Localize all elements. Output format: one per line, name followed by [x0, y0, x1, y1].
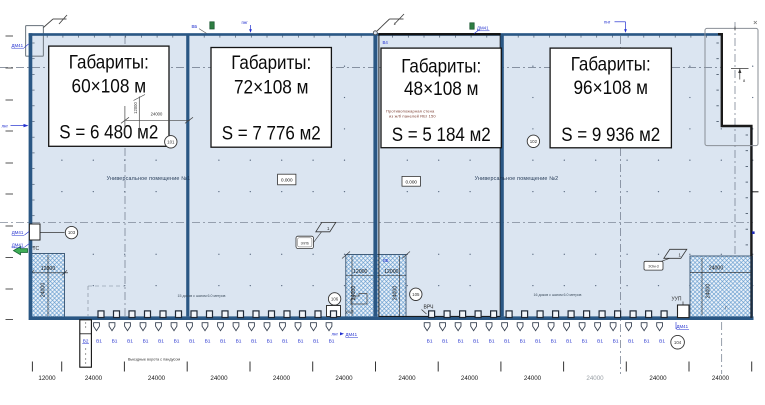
svg-text:пнг: пнг: [242, 20, 249, 25]
svg-text:В1: В1: [96, 339, 102, 345]
svg-text:В1: В1: [127, 339, 133, 345]
svg-text:24000: 24000: [273, 375, 291, 382]
svg-text:В1: В1: [220, 339, 226, 345]
svg-text:ДМ41: ДМ41: [12, 43, 24, 48]
svg-text:102: 102: [530, 139, 538, 144]
svg-text:В1: В1: [267, 339, 273, 345]
svg-text:12000: 12000: [41, 266, 56, 272]
svg-text:ЗпП6: ЗпП6: [301, 242, 309, 246]
svg-text:12000: 12000: [38, 375, 56, 382]
svg-text:24000: 24000: [351, 286, 357, 301]
svg-text:В1: В1: [205, 339, 211, 345]
svg-text:В1: В1: [298, 339, 304, 345]
svg-text:24000: 24000: [586, 375, 604, 382]
svg-text:24000: 24000: [148, 375, 166, 382]
svg-text:Габариты:: Габариты:: [231, 52, 311, 74]
svg-text:12000: 12000: [384, 269, 399, 275]
svg-text:В1: В1: [597, 339, 603, 345]
svg-text:24000: 24000: [706, 284, 712, 299]
svg-text:ДМ41: ДМ41: [12, 230, 24, 235]
svg-text:60×108 м: 60×108 м: [72, 76, 147, 98]
svg-text:24000: 24000: [151, 112, 163, 117]
svg-text:24000: 24000: [709, 266, 724, 272]
svg-text:В1: В1: [236, 339, 242, 345]
svg-text:72×108 м: 72×108 м: [234, 77, 309, 99]
svg-text:ЗОм-3: ЗОм-3: [648, 265, 659, 269]
svg-text:В2: В2: [83, 338, 89, 343]
svg-text:лнг: лнг: [332, 331, 339, 336]
svg-text:24000: 24000: [41, 283, 47, 298]
svg-text:В1: В1: [582, 339, 588, 345]
svg-text:S = 7 776 м2: S = 7 776 м2: [222, 123, 321, 145]
svg-text:ВРЧ: ВРЧ: [424, 305, 434, 311]
svg-text:Универсальное помещение №2: Универсальное помещение №2: [475, 176, 559, 182]
svg-text:В1: В1: [158, 339, 164, 345]
svg-text:24000: 24000: [712, 375, 730, 382]
svg-text:24000: 24000: [398, 375, 416, 382]
svg-text:1: 1: [394, 22, 396, 26]
svg-text:101: 101: [167, 139, 175, 144]
svg-text:24000: 24000: [461, 375, 479, 382]
svg-text:0.000: 0.000: [405, 179, 417, 184]
svg-text:В1: В1: [535, 339, 541, 345]
svg-text:УАП: УАП: [345, 310, 354, 315]
svg-text:В1: В1: [520, 339, 526, 345]
svg-text:В1: В1: [473, 339, 479, 345]
svg-text:96×108 м: 96×108 м: [573, 77, 648, 99]
svg-text:В1: В1: [313, 339, 319, 345]
svg-text:В1: В1: [566, 339, 572, 345]
svg-text:В1: В1: [427, 339, 433, 345]
svg-text:24000: 24000: [335, 375, 353, 382]
svg-text:В1: В1: [628, 339, 634, 345]
svg-text:В1: В1: [458, 339, 464, 345]
svg-text:24000: 24000: [393, 286, 399, 301]
svg-text:В1: В1: [551, 339, 557, 345]
svg-text:12000: 12000: [353, 269, 368, 275]
svg-text:S = 9 936 м2: S = 9 936 м2: [561, 124, 660, 146]
svg-text:24000: 24000: [649, 375, 667, 382]
svg-text:8: 8: [743, 78, 746, 83]
svg-text:В1: В1: [282, 339, 288, 345]
svg-text:В1: В1: [329, 339, 335, 345]
svg-text:ДМ41: ДМ41: [477, 25, 489, 30]
svg-text:0.000: 0.000: [281, 178, 293, 183]
svg-text:ТС: ТС: [33, 246, 40, 252]
svg-text:пнг: пнг: [604, 19, 611, 24]
svg-text:ВБ: ВБ: [383, 258, 389, 263]
svg-text:104: 104: [674, 340, 682, 345]
svg-text:48×108 м: 48×108 м: [404, 78, 479, 100]
svg-text:Габариты:: Габариты:: [401, 56, 481, 78]
svg-text:24000: 24000: [524, 375, 542, 382]
svg-text:24000: 24000: [210, 375, 228, 382]
svg-text:В4: В4: [383, 40, 389, 45]
svg-text:В1: В1: [251, 339, 257, 345]
svg-text:В1: В1: [504, 339, 510, 345]
svg-text:S = 6 480 м2: S = 6 480 м2: [59, 122, 158, 144]
svg-text:103: 103: [68, 230, 76, 235]
svg-text:лнг: лнг: [2, 123, 9, 128]
svg-text:ДМ41: ДМ41: [677, 324, 689, 329]
svg-text:15 доков с шагом 6.0 метров: 15 доков с шагом 6.0 метров: [178, 294, 226, 298]
svg-text:106: 106: [331, 297, 339, 302]
svg-text:В1: В1: [174, 339, 180, 345]
svg-text:Г.: Г.: [725, 305, 728, 310]
svg-text:В1: В1: [613, 339, 619, 345]
svg-text:105: 105: [412, 292, 420, 297]
svg-text:12000: 12000: [133, 102, 138, 114]
svg-text:Универсальное помещение №1: Универсальное помещение №1: [107, 176, 191, 182]
svg-text:24000: 24000: [85, 375, 103, 382]
svg-text:Выездные ворота с пандусом: Выездные ворота с пандусом: [128, 358, 181, 362]
svg-text:S = 5 184 м2: S = 5 184 м2: [392, 124, 491, 146]
svg-text:В1: В1: [489, 339, 495, 345]
svg-text:ДМ41: ДМ41: [12, 242, 24, 247]
svg-text:ДМ41: ДМ41: [346, 332, 358, 337]
svg-text:В1: В1: [143, 339, 149, 345]
svg-text:В1: В1: [189, 339, 195, 345]
svg-text:из ж/б панелей REI 150: из ж/б панелей REI 150: [389, 114, 436, 119]
svg-text:Габариты:: Габариты:: [571, 54, 651, 76]
svg-text:УУП: УУП: [672, 297, 682, 303]
svg-text:В1: В1: [442, 339, 448, 345]
svg-text:Габариты:: Габариты:: [69, 52, 149, 74]
svg-text:16 доков с шагом 6.0 метров: 16 доков с шагом 6.0 метров: [534, 293, 582, 297]
svg-text:В1: В1: [644, 339, 650, 345]
svg-text:В1: В1: [659, 339, 665, 345]
svg-text:ВБ: ВБ: [192, 24, 198, 29]
svg-text:В1: В1: [112, 339, 118, 345]
